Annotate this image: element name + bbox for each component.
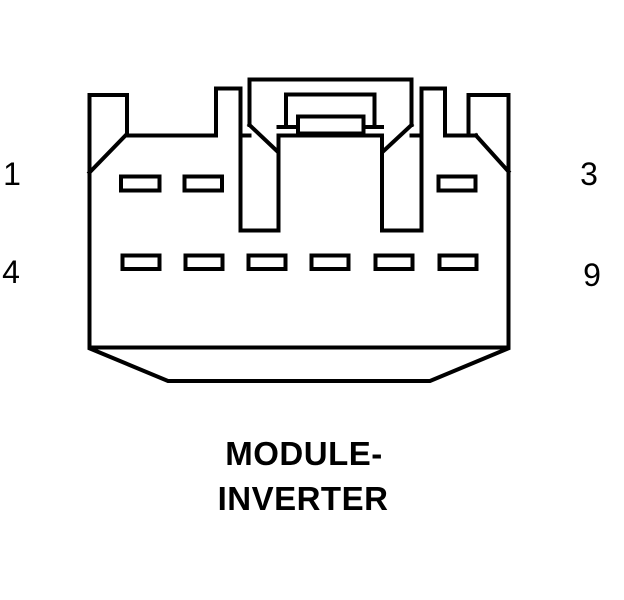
pin-label-row1-left: 1 (3, 156, 21, 192)
pin-label-row1-right: 3 (580, 156, 598, 192)
pin-label-row2-right: 9 (583, 257, 601, 293)
component-caption: MODULE- INVERTER (218, 435, 389, 517)
pin-cavity-5 (186, 256, 223, 270)
pin-cavity-2 (185, 177, 223, 191)
pin-cavity-8 (376, 256, 413, 270)
latch-assembly (250, 80, 412, 152)
pin-cavity-7 (312, 256, 349, 270)
caption-line-1: MODULE- (225, 435, 382, 472)
connector-pinout-diagram: 1 3 4 9 MODULE- INVERTER (0, 0, 624, 600)
latch-button (298, 117, 364, 134)
pin-cavity-1 (121, 177, 160, 191)
caption-line-2: INVERTER (218, 480, 389, 517)
pin-row-2 (123, 256, 477, 270)
pin-cavity-3 (439, 177, 476, 191)
pin-cavity-4 (123, 256, 160, 270)
connector-pinout-page: 1 3 4 9 MODULE- INVERTER (0, 0, 624, 600)
pin-cavity-6 (249, 256, 286, 270)
pin-number-labels: 1 3 4 9 (2, 156, 601, 293)
pin-cavity-9 (440, 256, 477, 270)
pin-label-row2-left: 4 (2, 254, 20, 290)
